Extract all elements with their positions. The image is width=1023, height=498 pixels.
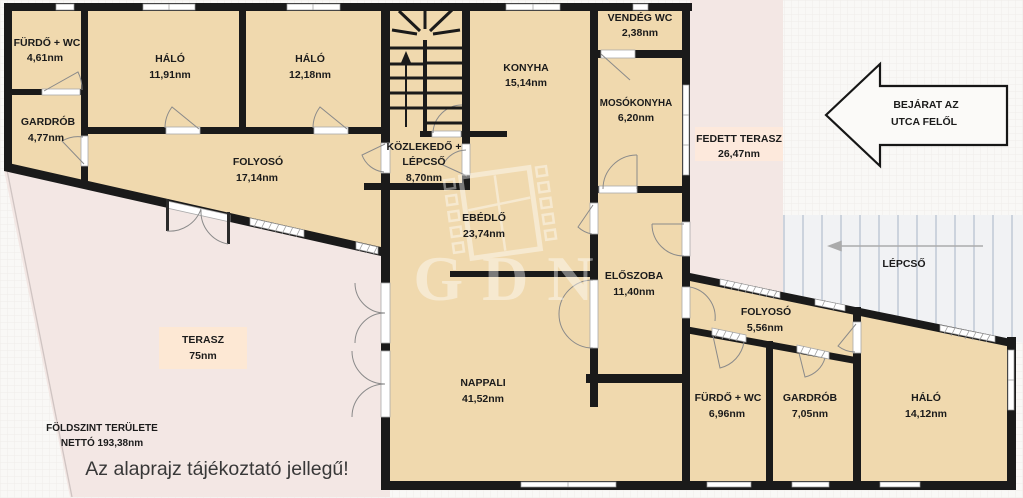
svg-text:NETTÓ 193,38nm: NETTÓ 193,38nm: [61, 436, 143, 449]
svg-text:26,47nm: 26,47nm: [718, 148, 760, 160]
svg-text:8,70nm: 8,70nm: [406, 172, 442, 184]
svg-text:Az alaprajz tájékoztató jelleg: Az alaprajz tájékoztató jellegű!: [85, 458, 348, 480]
svg-text:4,61nm: 4,61nm: [27, 52, 63, 64]
svg-text:GARDRÓB: GARDRÓB: [783, 391, 838, 404]
svg-text:KÖZLEKEDŐ +: KÖZLEKEDŐ +: [387, 140, 462, 153]
svg-text:FEDETT TERASZ: FEDETT TERASZ: [696, 133, 782, 145]
svg-text:BEJÁRAT AZ: BEJÁRAT AZ: [893, 98, 959, 111]
svg-text:6,20nm: 6,20nm: [618, 112, 654, 124]
svg-text:HÁLÓ: HÁLÓ: [911, 391, 941, 404]
svg-text:TERASZ: TERASZ: [182, 334, 225, 346]
svg-text:GARDRÓB: GARDRÓB: [21, 115, 76, 128]
svg-text:HÁLÓ: HÁLÓ: [155, 52, 185, 65]
svg-text:12,18nm: 12,18nm: [289, 69, 331, 81]
svg-text:14,12nm: 14,12nm: [905, 408, 947, 420]
svg-text:11,91nm: 11,91nm: [149, 69, 190, 81]
svg-text:5,56nm: 5,56nm: [747, 322, 783, 334]
svg-text:VENDÉG WC: VENDÉG WC: [608, 11, 673, 24]
svg-text:11,40nm: 11,40nm: [613, 286, 654, 298]
svg-text:7,05nm: 7,05nm: [792, 408, 828, 420]
svg-text:FOLYOSÓ: FOLYOSÓ: [741, 305, 791, 318]
svg-text:41,52nm: 41,52nm: [462, 393, 504, 405]
svg-text:NAPPALI: NAPPALI: [460, 377, 505, 389]
svg-text:UTCA FELŐL: UTCA FELŐL: [891, 115, 958, 128]
svg-text:17,14nm: 17,14nm: [236, 172, 278, 184]
svg-text:LÉPCSŐ: LÉPCSŐ: [402, 155, 445, 168]
svg-text:2,38nm: 2,38nm: [622, 27, 658, 39]
svg-text:4,77nm: 4,77nm: [28, 132, 64, 144]
svg-text:15,14nm: 15,14nm: [505, 77, 547, 89]
svg-text:MOSÓKONYHA: MOSÓKONYHA: [600, 97, 672, 109]
svg-text:KONYHA: KONYHA: [503, 62, 549, 74]
svg-text:23,74nm: 23,74nm: [463, 228, 505, 240]
svg-text:FÖLDSZINT TERÜLETE: FÖLDSZINT TERÜLETE: [46, 421, 158, 434]
svg-text:LÉPCSŐ: LÉPCSŐ: [882, 257, 925, 270]
svg-text:FÜRDŐ + WC: FÜRDŐ + WC: [695, 391, 762, 404]
svg-text:GDN: GDN: [413, 243, 612, 314]
svg-text:FÜRDŐ + WC: FÜRDŐ + WC: [14, 36, 81, 49]
svg-text:HÁLÓ: HÁLÓ: [295, 52, 325, 65]
svg-text:ELŐSZOBA: ELŐSZOBA: [605, 269, 664, 282]
svg-text:6,96nm: 6,96nm: [709, 408, 745, 420]
svg-text:75nm: 75nm: [189, 350, 216, 362]
svg-text:FOLYOSÓ: FOLYOSÓ: [233, 155, 283, 168]
svg-text:EBÉDLŐ: EBÉDLŐ: [462, 211, 506, 224]
